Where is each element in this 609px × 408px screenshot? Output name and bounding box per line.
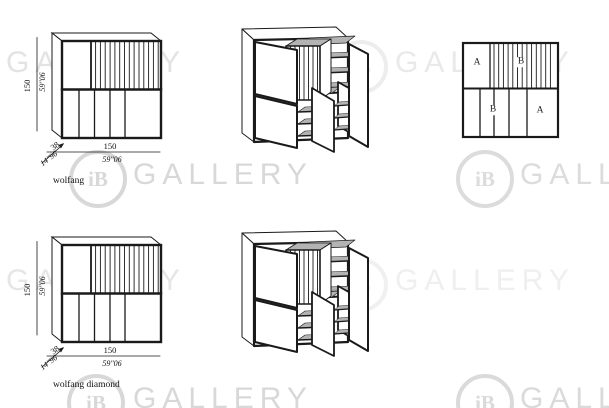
ib-logo-icon: iB [456, 150, 514, 208]
watermark-brand-text: GALLERY [6, 266, 186, 296]
catalog-page: GALLERY iB GALLERY iB GALLERY iB GALLERY… [0, 0, 609, 408]
watermark-brand-text: GALLERY [520, 160, 609, 190]
watermark-brand-text: GALLERY [395, 266, 575, 296]
watermark-brand-text: GALLERY [395, 48, 575, 78]
watermark-brand-text: GALLERY [133, 160, 313, 190]
watermark-brand-text: GALLERY [6, 48, 186, 78]
ib-logo-text: iB [351, 57, 371, 78]
ib-logo-text: iB [88, 169, 108, 190]
ib-logo-text: iB [475, 169, 495, 190]
ib-logo-icon: iB [67, 374, 125, 408]
ib-logo-text: iB [86, 393, 106, 408]
ib-logo-text: iB [475, 393, 495, 408]
ib-logo-icon: iB [69, 150, 127, 208]
ib-logo-text: iB [351, 275, 371, 296]
watermark-brand-text: GALLERY [520, 384, 609, 408]
ib-logo-icon: iB [334, 258, 388, 312]
watermark-layer: GALLERY iB GALLERY iB GALLERY iB GALLERY… [0, 0, 609, 408]
watermark-brand-text: GALLERY [133, 384, 313, 408]
ib-logo-icon: iB [334, 40, 388, 94]
ib-logo-icon: iB [456, 374, 514, 408]
